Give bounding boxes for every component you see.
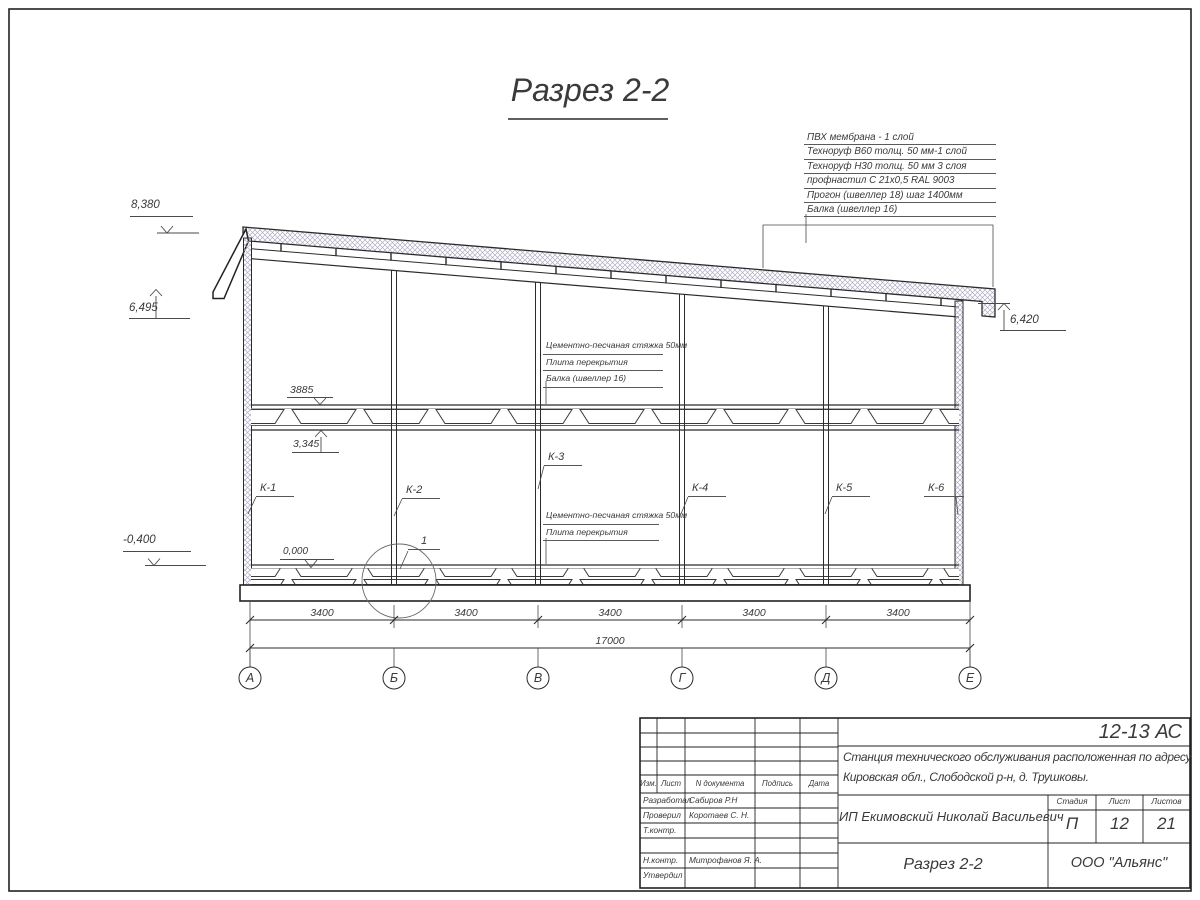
wall-left	[244, 238, 252, 585]
grid-axis-bubble-label: А	[237, 671, 263, 685]
wall-right	[955, 301, 963, 585]
role-label: Утвердил	[643, 871, 685, 881]
bay-dimension: 3400	[588, 607, 632, 619]
stage-header: Стадия	[1048, 797, 1096, 807]
roof-annotation: ПВХ мембрана - 1 слой	[804, 131, 996, 145]
project-description-line1: Станция технического обслуживания распол…	[843, 751, 1187, 765]
cad-linework	[0, 0, 1200, 900]
role-name: Коротаев С. Н.	[689, 811, 753, 821]
roof-annotation: Прогон (швеллер 18) шаг 1400мм	[804, 189, 996, 203]
col-header-izm: Изм.	[640, 780, 657, 789]
sheets-total: 21	[1143, 814, 1190, 834]
bay-dimension: 3400	[444, 607, 488, 619]
roof-annotation: Техноруф В60 толщ. 50 мм-1 слой	[804, 145, 996, 159]
floor-annotation: Цементно-песчаная стяжка 50мм	[543, 338, 663, 355]
role-label: Т.контр.	[643, 826, 685, 836]
roof-annotation-stack: ПВХ мембрана - 1 слой Техноруф В60 толщ.…	[804, 131, 996, 217]
bay-dimension: 3400	[300, 607, 344, 619]
col-header-sign: Подпись	[755, 780, 800, 789]
role-name: Сабиров Р.Н	[689, 796, 753, 806]
column-label: К-1	[256, 482, 294, 497]
elevation-slab-top: 3885	[290, 384, 336, 396]
column-label: К-5	[832, 482, 870, 497]
elevation-beam-bottom: 3,345	[293, 438, 339, 450]
elevation-ground: -0,400	[123, 534, 189, 547]
column-label: К-6	[924, 482, 964, 497]
detail-callout-number: 1	[408, 535, 440, 550]
role-name: Митрофанов Я. А.	[689, 856, 759, 866]
col-header-date: Дата	[800, 780, 838, 789]
floor-annotation: Балка (швеллер 16)	[543, 371, 663, 388]
elevation-eave-left: 6,495	[129, 302, 189, 315]
elevation-eave-right: 6,420	[1010, 314, 1070, 327]
grid-axis-bubble-label: Б	[381, 671, 407, 685]
role-label: Н.контр.	[643, 856, 685, 866]
roof-section	[213, 227, 995, 317]
grid-axis-bubble-label: В	[525, 671, 551, 685]
sheet-header: Лист	[1096, 797, 1143, 807]
ground-annotation: Цементно-песчаная стяжка 50мм	[543, 508, 659, 525]
ground-floor	[240, 565, 970, 601]
document-code: 12-13 АС	[846, 721, 1182, 744]
sheet-number: 12	[1096, 814, 1143, 834]
drawing-title: Разрез 2-2	[500, 72, 680, 109]
col-header-ndoc: N документа	[685, 780, 755, 789]
roof-annotation: Техноруф Н30 толщ. 50 мм 3 слоя	[804, 160, 996, 174]
sheet-title: Разрез 2-2	[839, 856, 1047, 874]
grid-axis-bubble-label: Г	[669, 671, 695, 685]
elevation-roof-high: 8,380	[131, 199, 191, 212]
grid-axis-bubble-label: Е	[957, 671, 983, 685]
column-label: К-2	[402, 484, 440, 499]
total-dimension: 17000	[588, 635, 632, 647]
column-label: К-3	[544, 451, 582, 466]
grid-axis-bubble-label: Д	[813, 671, 839, 685]
column-label: К-4	[688, 482, 726, 497]
roof-annotation: Балка (швеллер 16)	[804, 203, 996, 217]
bay-dimension: 3400	[876, 607, 920, 619]
bay-dimension: 3400	[732, 607, 776, 619]
roof-annotation: профнастил С 21х0,5 RAL 9003	[804, 174, 996, 188]
organization-name: ООО "Альянс"	[1049, 855, 1189, 872]
ground-annotation: Плита перекрытия	[543, 525, 659, 542]
client-name: ИП Екимовский Николай Васильевич	[839, 810, 1047, 825]
ground-annotation-stack: Цементно-песчаная стяжка 50мм Плита пере…	[543, 508, 659, 541]
role-label: Разработал	[643, 796, 685, 806]
mezzanine-floor	[251, 405, 959, 430]
drawing-sheet: Разрез 2-2 ПВХ мембрана - 1 слой Технору…	[0, 0, 1200, 900]
roof-purlins	[281, 244, 941, 306]
sheets-header: Листов	[1143, 797, 1190, 807]
col-header-list: Лист	[657, 780, 685, 789]
elevation-floor-zero: 0,000	[283, 546, 333, 558]
foundation	[240, 585, 970, 601]
floor-annotation: Плита перекрытия	[543, 355, 663, 372]
floor-annotation-stack: Цементно-песчаная стяжка 50мм Плита пере…	[543, 338, 663, 388]
role-label: Проверил	[643, 811, 685, 821]
project-description-line2: Кировская обл., Слободской р-н, д. Трушк…	[843, 771, 1187, 785]
stage-value: П	[1048, 814, 1096, 834]
